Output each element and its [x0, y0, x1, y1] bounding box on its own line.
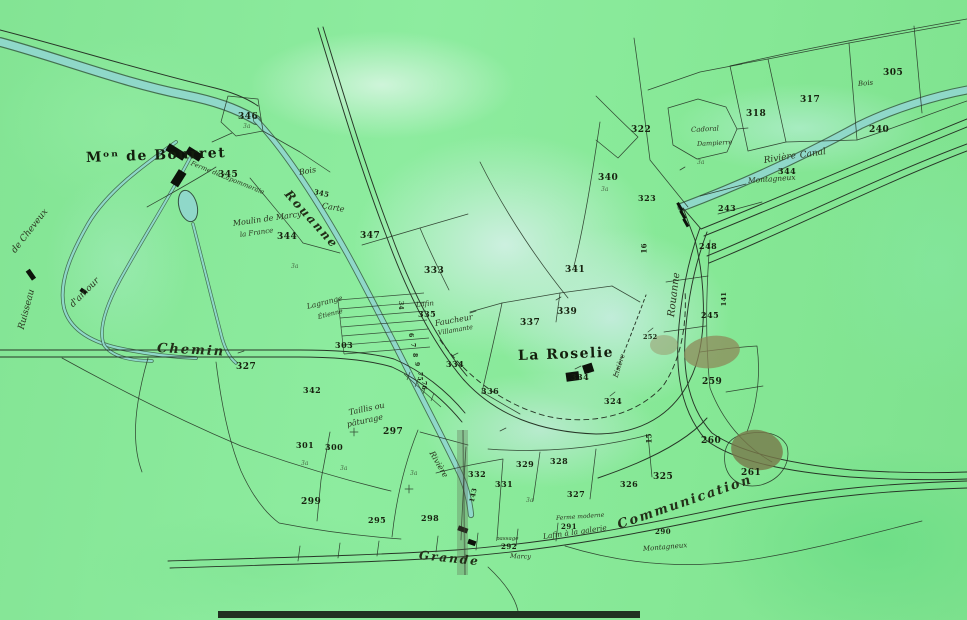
- map-label: 6: [407, 333, 413, 337]
- map-label: 345: [218, 171, 238, 180]
- map-label: 345: [313, 188, 330, 198]
- map-label: Dampierre: [697, 139, 733, 147]
- road-layer: [0, 27, 967, 568]
- map-label: 337: [520, 319, 540, 328]
- map-label: 290: [655, 528, 671, 535]
- map-label: 333: [424, 267, 444, 276]
- map-canvas: Mᵒⁿ de BourretLa RoselieCheminGrandeComm…: [0, 0, 967, 620]
- map-label: 260: [701, 437, 721, 446]
- map-label: 342: [303, 386, 321, 394]
- map-label: 326: [620, 480, 638, 488]
- map-label: 332: [468, 470, 486, 478]
- map-label: 341: [565, 266, 585, 275]
- map-label: 328: [550, 457, 568, 465]
- map-label: 335: [418, 310, 436, 318]
- map-label: 3a: [243, 124, 250, 130]
- map-label: 295: [368, 516, 386, 524]
- map-label: 3a: [601, 187, 608, 193]
- map-label: 329: [516, 460, 534, 468]
- map-label: 297: [383, 428, 403, 437]
- map-label: 339: [557, 308, 577, 317]
- map-label: 340: [598, 174, 618, 183]
- map-label: 327: [567, 490, 585, 498]
- map-label: 9: [413, 362, 419, 366]
- map-label: 331: [495, 480, 513, 488]
- map-label: 305: [883, 69, 903, 78]
- map-label: 322: [631, 126, 651, 135]
- map-label: 301: [296, 441, 314, 449]
- map-label: 252: [643, 334, 657, 341]
- map-label: 76: [420, 381, 426, 390]
- map-label: 334: [571, 373, 589, 381]
- map-label: 3a: [697, 160, 704, 166]
- map-label: 141: [721, 292, 728, 306]
- map-label: Bois: [858, 80, 874, 88]
- map-label: La Roselie: [518, 346, 615, 363]
- map-label: 344: [778, 167, 796, 175]
- map-label: 317: [800, 96, 820, 105]
- map-label: 259: [702, 378, 722, 387]
- map-label: Cadoral: [691, 126, 719, 134]
- map-label: 299: [301, 498, 321, 507]
- map-label: 16: [641, 243, 648, 253]
- parcel-layer: [62, 19, 967, 611]
- map-label: 248: [699, 242, 717, 250]
- map-label: 298: [421, 514, 439, 522]
- map-label: 347: [360, 232, 380, 241]
- map-label: 292: [501, 543, 517, 550]
- map-label: 15: [646, 433, 653, 443]
- map-label: Marcy: [510, 553, 531, 560]
- map-label: 3a: [526, 498, 533, 504]
- map-label: 75: [416, 372, 422, 381]
- map-label: 334: [446, 360, 464, 368]
- map-label: 336: [481, 387, 499, 395]
- scan-artifacts: [218, 611, 640, 618]
- map-label: 323: [638, 194, 656, 202]
- river-layer: [0, 42, 967, 515]
- map-label: Chemin: [157, 342, 226, 359]
- map-label: 318: [746, 110, 766, 119]
- map-label: 34: [397, 301, 403, 310]
- map-label: 261: [741, 469, 761, 478]
- map-label: 327: [236, 363, 256, 372]
- map-label: 303: [335, 341, 353, 349]
- map-label: 344: [277, 233, 297, 242]
- map-label: 3a: [291, 264, 298, 270]
- map-label: 300: [325, 443, 343, 451]
- map-label: 291: [561, 523, 577, 530]
- map-label: 243: [718, 204, 736, 212]
- map-label: 324: [604, 397, 622, 405]
- map-label: 3a: [340, 466, 347, 472]
- map-label: 3a: [410, 471, 417, 477]
- map-label: 245: [701, 311, 719, 319]
- map-label: 346: [238, 113, 258, 122]
- map-label: 8: [411, 353, 417, 357]
- map-label: 3a: [301, 461, 308, 467]
- map-linework: [0, 0, 967, 620]
- map-label: 325: [653, 473, 673, 482]
- map-label: 7: [409, 343, 415, 347]
- map-label: 240: [869, 126, 889, 135]
